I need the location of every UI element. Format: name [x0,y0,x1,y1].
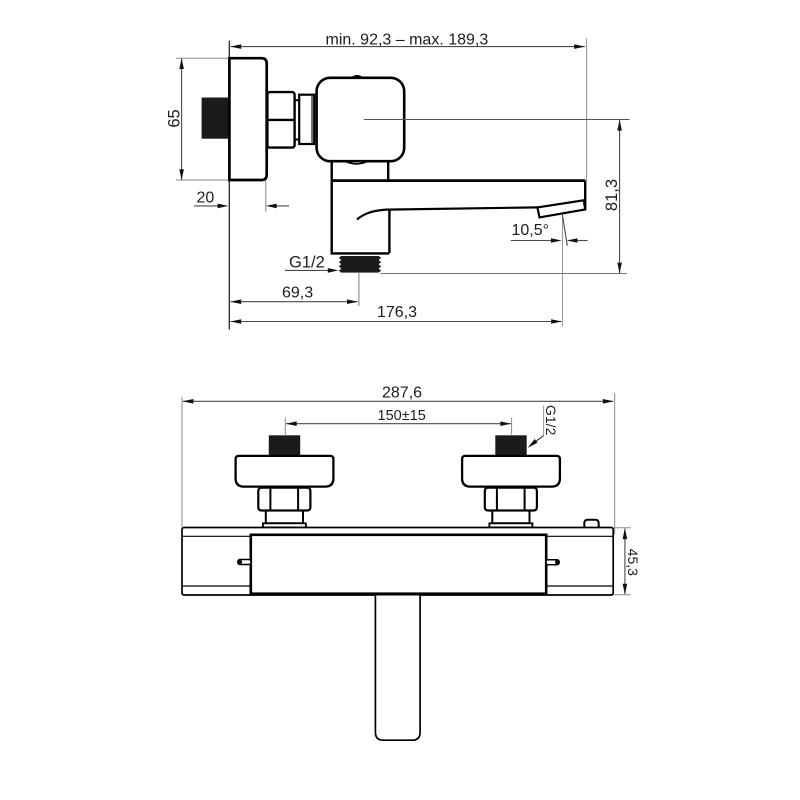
svg-text:G1/2: G1/2 [543,405,559,436]
svg-text:G1/2: G1/2 [289,254,325,272]
svg-text:81,3: 81,3 [603,179,621,211]
svg-text:65: 65 [165,109,183,127]
svg-text:20: 20 [197,190,215,207]
svg-text:69,3: 69,3 [282,284,313,301]
svg-text:45,3: 45,3 [625,549,641,576]
svg-text:150±15: 150±15 [378,408,426,424]
svg-text:287,6: 287,6 [382,384,422,401]
svg-text:min. 92,3 – max. 189,3: min. 92,3 – max. 189,3 [326,32,489,49]
svg-text:10,5°: 10,5° [512,222,550,239]
svg-text:176,3: 176,3 [377,304,417,321]
